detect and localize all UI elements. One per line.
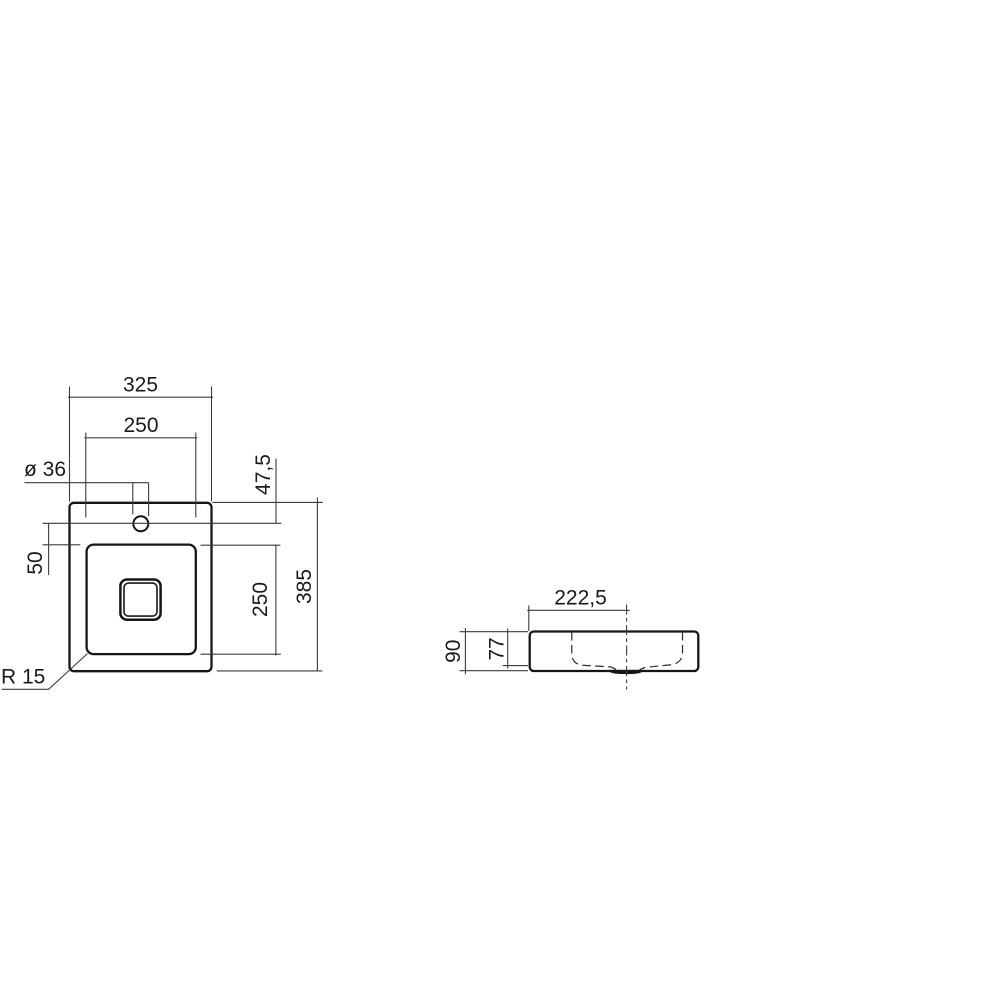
svg-text:385: 385: [293, 569, 316, 604]
svg-text:R 15: R 15: [1, 666, 45, 689]
svg-text:50: 50: [24, 551, 47, 574]
svg-text:90: 90: [442, 640, 465, 663]
svg-text:222,5: 222,5: [554, 587, 607, 610]
svg-text:250: 250: [249, 582, 272, 617]
svg-text:ø 36: ø 36: [24, 458, 66, 481]
svg-text:77: 77: [486, 637, 509, 660]
svg-text:325: 325: [123, 373, 158, 396]
svg-text:47,5: 47,5: [252, 454, 275, 495]
svg-text:250: 250: [123, 414, 158, 437]
